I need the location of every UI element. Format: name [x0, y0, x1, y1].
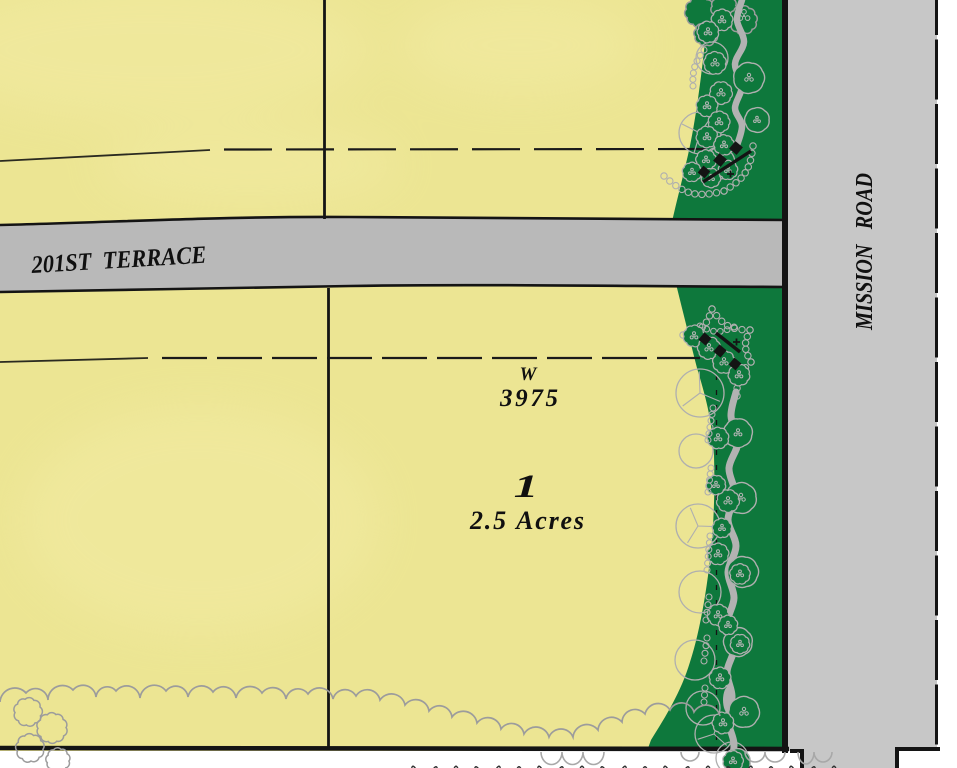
- svg-text:1: 1: [514, 469, 539, 505]
- svg-text:W: W: [520, 364, 538, 385]
- svg-text:2.5 Acres: 2.5 Acres: [469, 506, 584, 535]
- svg-text:MISSION ROAD: MISSION ROAD: [852, 173, 878, 331]
